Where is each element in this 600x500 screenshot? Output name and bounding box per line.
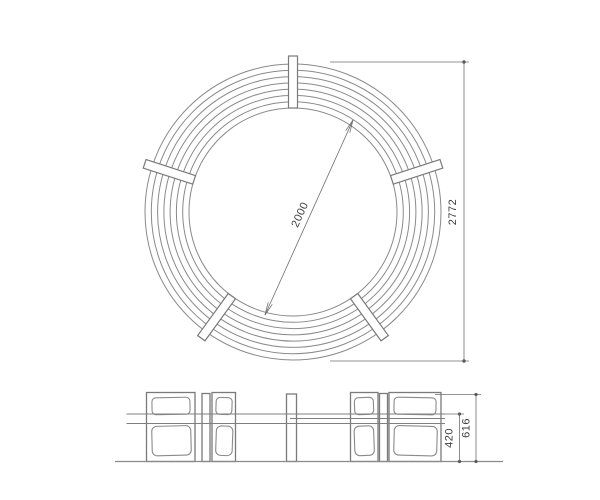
slat-circle xyxy=(151,70,434,353)
slat-circle xyxy=(158,77,429,348)
bench-leg xyxy=(147,393,196,462)
slat-circle xyxy=(183,102,404,323)
seat-band xyxy=(127,414,446,424)
plan-view: 2000 2772 xyxy=(143,56,469,363)
slat-circle xyxy=(176,95,409,328)
dimension-end-dot xyxy=(458,412,461,415)
dimension-end-dot xyxy=(458,460,461,463)
batten-edge xyxy=(380,394,388,462)
dimension-end-dot xyxy=(462,60,465,63)
dimension-outer-diameter: 2772 xyxy=(330,60,469,362)
inner-diameter-label: 2000 xyxy=(289,200,311,229)
dimension-end-dot xyxy=(474,393,477,396)
center-batten-post xyxy=(287,394,297,462)
bench-technical-drawing: 2000 2772 xyxy=(0,0,600,500)
leg-panel-bottom xyxy=(152,425,192,456)
bench-leg xyxy=(351,393,379,462)
bench-leg xyxy=(212,393,236,462)
dimension-end-dot xyxy=(474,460,477,463)
slat-circle xyxy=(164,83,422,341)
batten xyxy=(289,56,298,108)
dimension-overall-height: 616 xyxy=(435,393,481,463)
leg-panel-bottom xyxy=(394,425,438,456)
leg-panel-top xyxy=(394,397,436,415)
slat-circle xyxy=(189,108,397,316)
bench-leg xyxy=(389,393,441,462)
seat-height-label: 420 xyxy=(444,428,456,448)
dimension-inner-diameter: 2000 xyxy=(265,120,353,315)
leg-panel-top xyxy=(216,397,233,415)
overall-height-label: 616 xyxy=(461,418,473,438)
leg-panel-top xyxy=(152,397,190,415)
leg-panel-top xyxy=(354,397,374,415)
technical-drawing-page: 2000 2772 xyxy=(0,0,600,500)
batten-edge xyxy=(202,394,210,462)
leg-panel-bottom xyxy=(354,426,375,456)
slat-circle xyxy=(170,89,416,335)
elevation-view: 420 616 xyxy=(115,393,503,464)
outer-diameter-label: 2772 xyxy=(447,199,459,225)
leg-panel-bottom xyxy=(215,426,233,456)
dimension-end-dot xyxy=(462,359,465,362)
dimension-line xyxy=(265,120,353,315)
